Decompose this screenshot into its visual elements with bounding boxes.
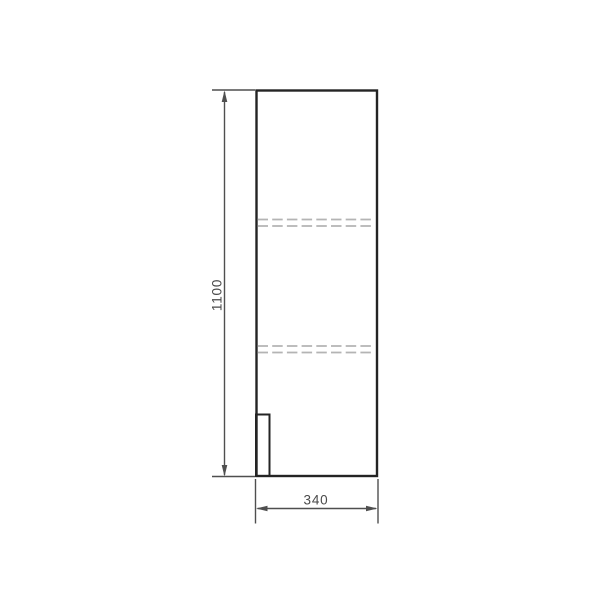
- width-arrow-right-icon: [366, 506, 378, 512]
- width-arrow-left-icon: [256, 506, 268, 512]
- height-dimension-label: 1100: [210, 279, 225, 311]
- cabinet-outline: [257, 91, 378, 477]
- width-dimension-label: 340: [304, 493, 329, 508]
- technical-drawing-page: 1100 340: [0, 0, 600, 600]
- height-dimension: 1100: [210, 90, 256, 477]
- cabinet-front-elevation: 1100 340: [0, 0, 600, 600]
- height-arrow-up-icon: [222, 91, 228, 103]
- height-arrow-down-icon: [222, 465, 228, 477]
- plinth-panel-outline: [256, 415, 270, 477]
- width-dimension: 340: [256, 479, 379, 524]
